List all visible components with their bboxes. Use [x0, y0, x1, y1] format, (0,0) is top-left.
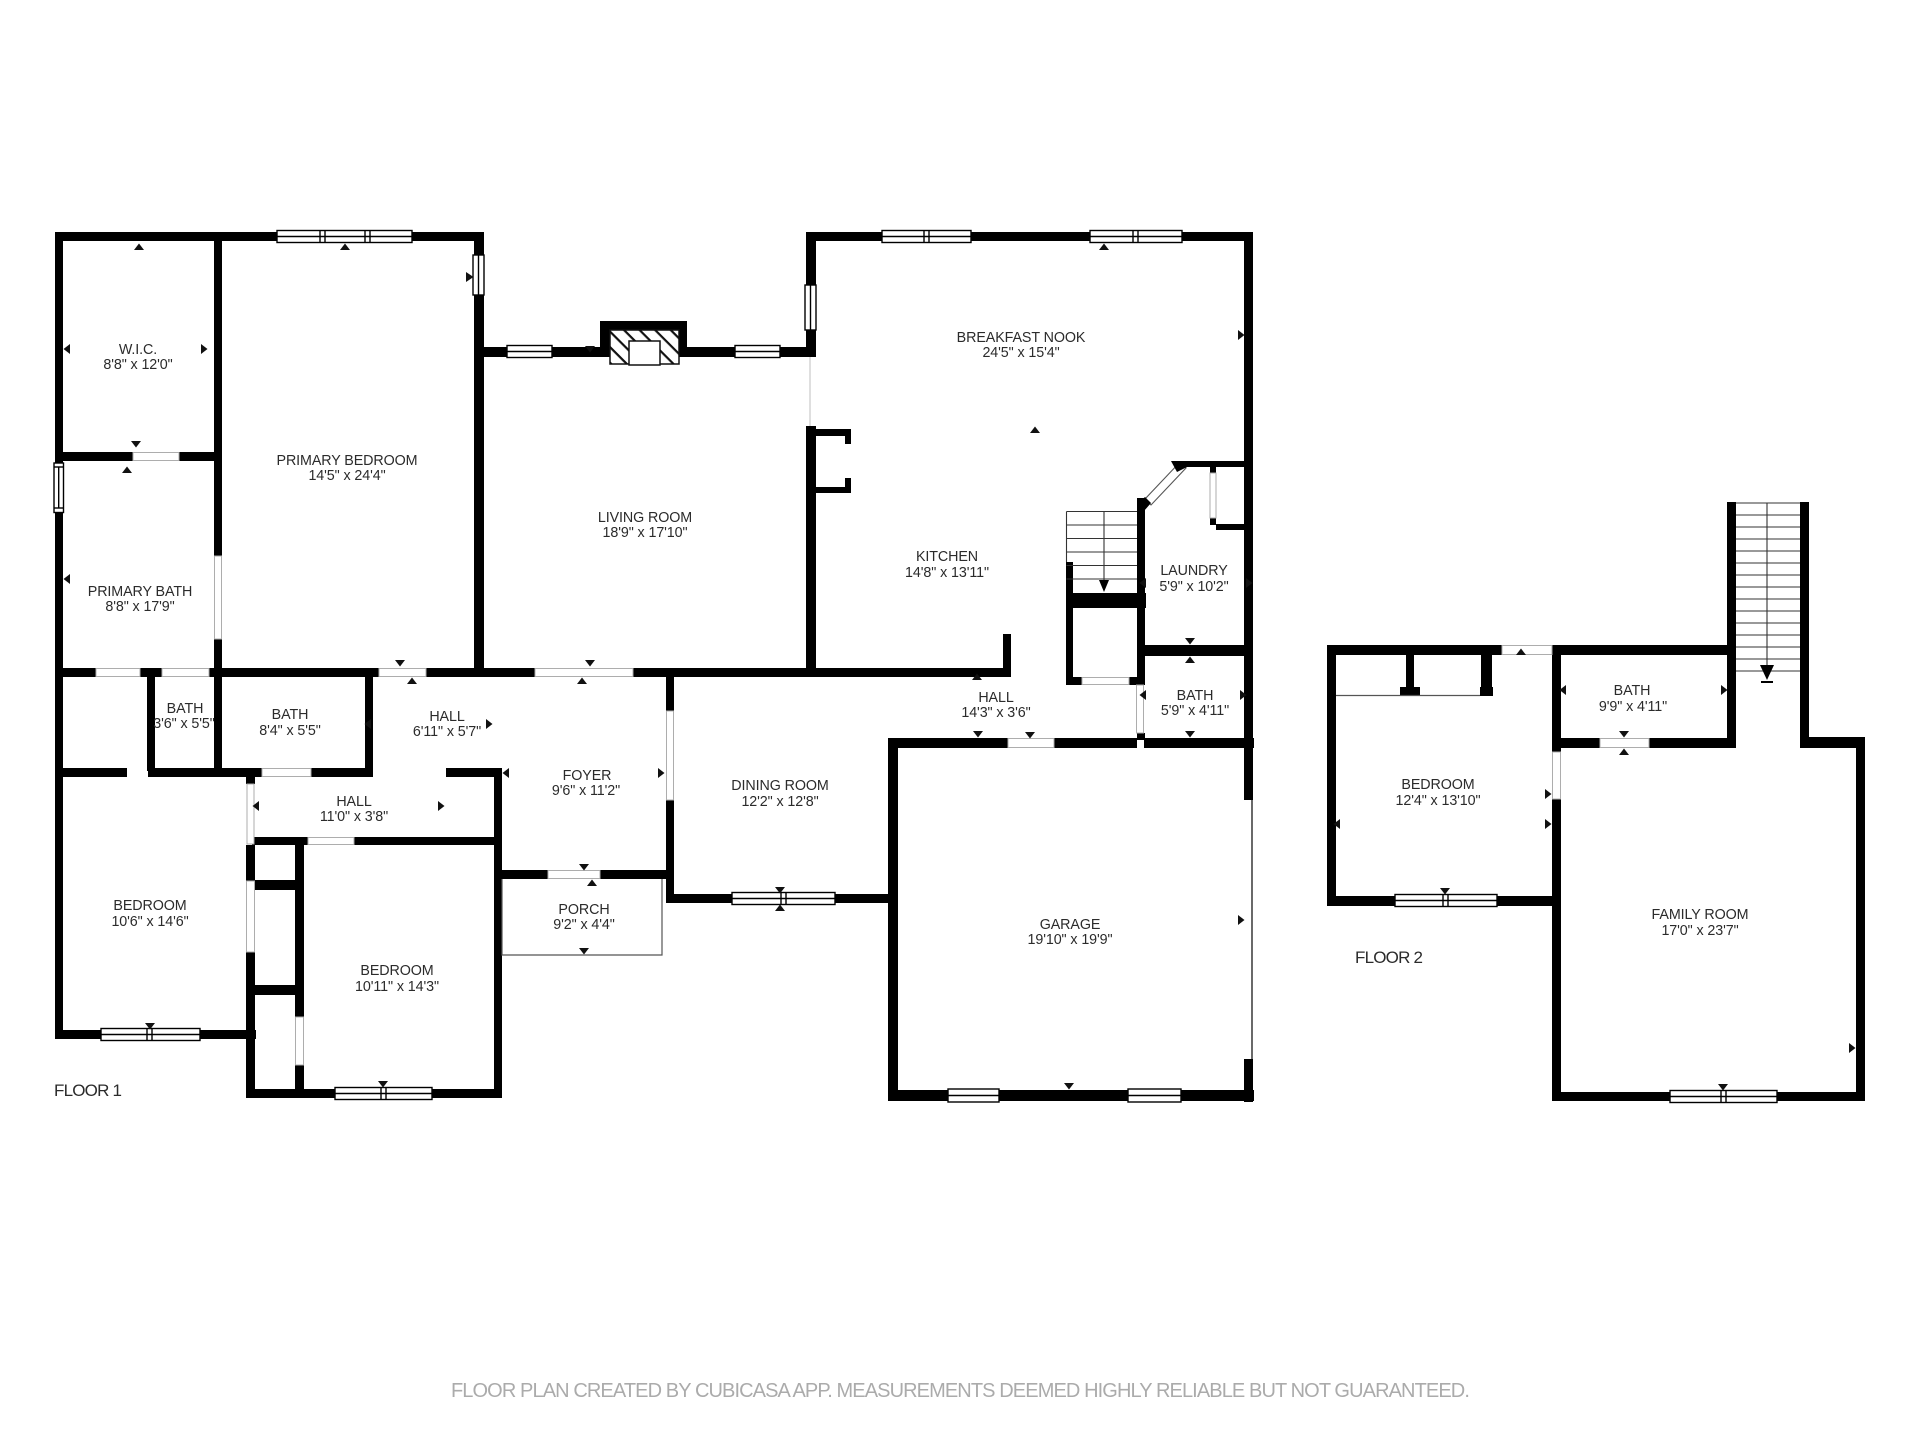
svg-text:FOYER: FOYER	[563, 768, 612, 784]
svg-text:FLOOR 1: FLOOR 1	[54, 1081, 121, 1100]
svg-text:FLOOR PLAN CREATED BY CUBICASA: FLOOR PLAN CREATED BY CUBICASA APP. MEAS…	[451, 1380, 1469, 1402]
svg-text:14'3" x 3'6": 14'3" x 3'6"	[961, 705, 1030, 721]
svg-text:BATH: BATH	[167, 701, 204, 717]
svg-text:5'9" x 4'11": 5'9" x 4'11"	[1161, 703, 1229, 719]
svg-text:HALL: HALL	[429, 709, 465, 725]
svg-text:BATH: BATH	[1177, 688, 1214, 704]
svg-text:6'11" x 5'7": 6'11" x 5'7"	[413, 724, 481, 740]
svg-text:BEDROOM: BEDROOM	[360, 963, 433, 979]
svg-text:8'8" x 12'0": 8'8" x 12'0"	[103, 357, 172, 373]
svg-text:PRIMARY BEDROOM: PRIMARY BEDROOM	[277, 453, 418, 469]
svg-text:BEDROOM: BEDROOM	[113, 898, 186, 914]
svg-text:12'4" x 13'10": 12'4" x 13'10"	[1396, 793, 1481, 809]
svg-text:HALL: HALL	[978, 690, 1014, 706]
svg-text:9'6" x 11'2": 9'6" x 11'2"	[552, 783, 620, 799]
svg-text:FAMILY ROOM: FAMILY ROOM	[1652, 907, 1749, 923]
svg-text:LAUNDRY: LAUNDRY	[1160, 563, 1228, 579]
svg-text:24'5" x 15'4": 24'5" x 15'4"	[982, 345, 1059, 361]
svg-text:10'6" x 14'6": 10'6" x 14'6"	[111, 914, 188, 930]
svg-text:KITCHEN: KITCHEN	[916, 549, 978, 565]
svg-text:14'8" x 13'11": 14'8" x 13'11"	[905, 565, 989, 581]
svg-text:HALL: HALL	[336, 794, 372, 810]
svg-text:FLOOR 2: FLOOR 2	[1355, 948, 1422, 967]
svg-text:BREAKFAST NOOK: BREAKFAST NOOK	[957, 330, 1086, 346]
svg-text:9'2" x 4'4": 9'2" x 4'4"	[553, 917, 614, 933]
svg-text:19'10" x 19'9": 19'10" x 19'9"	[1028, 932, 1113, 948]
svg-text:PRIMARY BATH: PRIMARY BATH	[88, 584, 192, 600]
svg-text:3'6" x 5'5": 3'6" x 5'5"	[153, 716, 214, 732]
svg-text:LIVING ROOM: LIVING ROOM	[598, 510, 692, 526]
svg-text:12'2" x 12'8": 12'2" x 12'8"	[741, 794, 818, 810]
svg-text:GARAGE: GARAGE	[1040, 917, 1101, 933]
svg-text:BATH: BATH	[272, 707, 309, 723]
svg-text:PORCH: PORCH	[558, 902, 609, 918]
svg-text:8'4" x 5'5": 8'4" x 5'5"	[259, 723, 320, 739]
svg-text:9'9" x 4'11": 9'9" x 4'11"	[1599, 699, 1667, 715]
svg-text:18'9" x 17'10": 18'9" x 17'10"	[603, 525, 688, 541]
svg-text:BEDROOM: BEDROOM	[1401, 777, 1474, 793]
svg-text:10'11" x 14'3": 10'11" x 14'3"	[355, 979, 439, 995]
svg-text:BATH: BATH	[1614, 683, 1651, 699]
svg-text:5'9" x 10'2": 5'9" x 10'2"	[1159, 579, 1228, 595]
svg-text:DINING ROOM: DINING ROOM	[731, 778, 828, 794]
svg-text:11'0" x 3'8": 11'0" x 3'8"	[320, 809, 388, 825]
svg-text:W.I.C.: W.I.C.	[119, 342, 157, 358]
svg-text:14'5" x 24'4": 14'5" x 24'4"	[308, 468, 385, 484]
svg-text:8'8" x 17'9": 8'8" x 17'9"	[105, 599, 174, 615]
svg-text:17'0" x 23'7": 17'0" x 23'7"	[1661, 923, 1738, 939]
